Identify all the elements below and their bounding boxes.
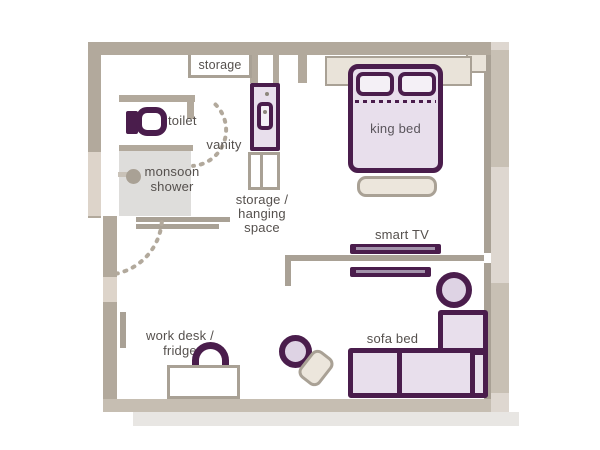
- toilet-label: toilet: [168, 113, 220, 128]
- tv-bar-sofa-side: [350, 267, 431, 277]
- monsoon-shower-label-line2: shower: [128, 179, 216, 194]
- drain-dot: [263, 110, 267, 114]
- tv-partition-wall: [285, 255, 484, 261]
- sofa-notch-horizontal: [470, 350, 484, 355]
- sofa-bed-label: sofa bed: [350, 331, 435, 346]
- work-desk: [167, 365, 240, 399]
- pillow-left: [356, 72, 394, 96]
- tv-partition-return: [285, 255, 291, 286]
- storage-label: storage: [188, 58, 252, 73]
- hanging-label-line3: space: [222, 220, 302, 235]
- king-bed-label: king bed: [353, 121, 438, 136]
- king-bed: king bed: [348, 64, 443, 173]
- hanging-label-line2: hanging: [222, 206, 302, 221]
- toilet-icon: [126, 107, 168, 137]
- vanity-label: vanity: [198, 137, 250, 152]
- plan-shadow: [133, 412, 519, 426]
- top-wall: [88, 42, 491, 55]
- bed-bench: [357, 176, 437, 197]
- bathroom-door-swing-arc: [185, 95, 245, 175]
- faucet-dot: [265, 92, 269, 96]
- vanity-counter: [250, 83, 280, 151]
- right-inner-wall-upper: [484, 55, 491, 253]
- tv-bar-bed-side: [350, 244, 441, 254]
- monsoon-shower-label-line1: monsoon: [128, 164, 216, 179]
- sofa-notch-vertical: [470, 350, 475, 393]
- right-wall-segment-lower: [491, 283, 509, 393]
- hanging-space-divider: [260, 155, 263, 187]
- sheet-dotted-line: [355, 100, 436, 103]
- vanity-wall-stub-mid: [273, 55, 279, 83]
- tv-screen-stripe: [356, 247, 435, 250]
- floor-plan: king bed smart TV sofa bed work desk / f…: [0, 0, 600, 450]
- vanity-wall-stub-right: [298, 55, 307, 83]
- toilet-bowl: [136, 107, 167, 136]
- right-wall-segment-upper: [491, 50, 509, 167]
- smart-tv-label: smart TV: [357, 227, 447, 242]
- toilet-room-top-wall: [119, 95, 195, 102]
- round-chair-top: [436, 272, 472, 308]
- sofa-bed-seat: [348, 348, 488, 398]
- pillow-right: [398, 72, 436, 96]
- bottom-wall: [103, 399, 509, 412]
- wall-mirror-bar: [120, 312, 126, 348]
- sink-icon: [257, 102, 273, 130]
- hanging-space-box: [248, 152, 280, 190]
- work-desk-label-line1: work desk /: [130, 328, 230, 343]
- tv-screen-stripe-2: [356, 270, 425, 273]
- entry-door-swing-arc: [95, 205, 185, 295]
- right-outer-band: [491, 42, 509, 412]
- hanging-label-line1: storage /: [222, 192, 302, 207]
- sofa-seat-divider: [397, 353, 402, 393]
